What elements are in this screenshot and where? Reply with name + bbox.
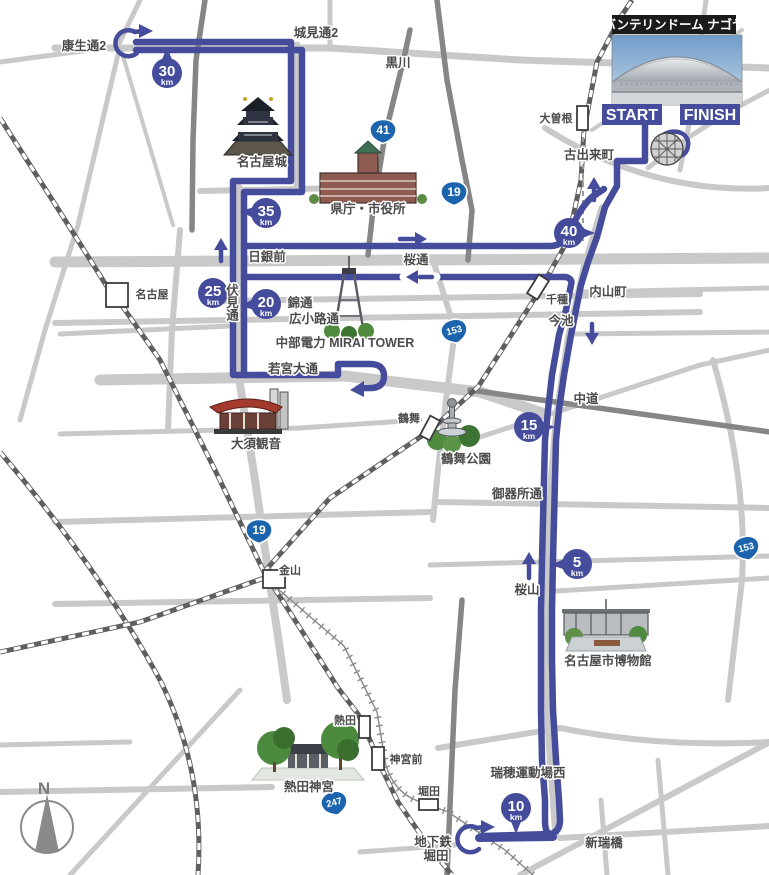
route-shields: 41 19 153 19 247 153 bbox=[246, 120, 762, 819]
station-atsuta bbox=[359, 716, 370, 738]
label-aratamabashi: 新瑞橋 bbox=[585, 835, 623, 850]
svg-text:km: km bbox=[523, 431, 536, 441]
svg-text:km: km bbox=[207, 297, 220, 307]
turnaround-arrow-wakamiya bbox=[350, 381, 364, 397]
svg-text:km: km bbox=[563, 237, 576, 247]
route-41-shield: 41 bbox=[370, 120, 396, 144]
turnaround-arrow-horita bbox=[481, 820, 495, 834]
label-kurokawa: 黒川 bbox=[385, 56, 410, 70]
label-nishikidori: 錦通 bbox=[286, 295, 313, 310]
dome-label: バンテリンドーム ナゴヤ bbox=[603, 15, 744, 34]
start-badge: START bbox=[602, 104, 662, 125]
label-tsurumai: 鶴舞 bbox=[398, 411, 420, 425]
label-ozone: 大曽根 bbox=[540, 111, 574, 125]
station-jingumae bbox=[372, 747, 384, 770]
svg-text:km: km bbox=[571, 568, 584, 578]
svg-text:19: 19 bbox=[252, 523, 266, 537]
label-koseidori2: 康生通2 bbox=[62, 38, 107, 53]
label-uchiyamacho: 内山町 bbox=[589, 284, 627, 299]
label-furudekicho: 古出来町 bbox=[564, 147, 615, 162]
compass-n-text: N bbox=[38, 779, 50, 798]
label-atsuta: 熱田 bbox=[334, 713, 356, 727]
station-nagoya bbox=[106, 283, 128, 307]
city-museum-icon bbox=[562, 599, 650, 651]
svg-text:41: 41 bbox=[376, 123, 390, 137]
finish-badge-text: FINISH bbox=[684, 107, 736, 124]
label-kanayama: 金山 bbox=[278, 563, 301, 577]
label-chikatetsu-horita: 堀田 bbox=[423, 848, 448, 863]
svg-text:19: 19 bbox=[447, 185, 461, 199]
label-nichiginmae: 日銀前 bbox=[248, 249, 286, 264]
label-horita: 堀田 bbox=[418, 784, 440, 798]
nagoya-castle-icon bbox=[224, 97, 292, 155]
course-map: バンテリンドーム ナゴヤ 41 19 153 19 bbox=[0, 0, 769, 875]
atsuta-shrine-icon bbox=[252, 721, 364, 780]
route-153-shield: 153 bbox=[439, 316, 471, 346]
label-atsuta-shrine: 熱田神宮 bbox=[284, 779, 334, 794]
label-osu-kannon: 大須観音 bbox=[231, 436, 282, 451]
osu-kannon-icon bbox=[210, 389, 288, 434]
label-mirai-tower: 中部電力 MIRAI TOWER bbox=[276, 335, 415, 350]
label-gokishodori: 御器所通 bbox=[491, 486, 543, 501]
label-sakurayama: 桜山 bbox=[514, 582, 539, 597]
turnaround-arrow-30km bbox=[139, 24, 153, 38]
course-map-svg: バンテリンドーム ナゴヤ 41 19 153 19 bbox=[0, 0, 769, 875]
prefectural-office-icon bbox=[309, 141, 427, 204]
svg-text:km: km bbox=[161, 77, 174, 87]
label-nakamichi: 中道 bbox=[573, 391, 599, 406]
svg-text:km: km bbox=[510, 812, 523, 822]
dome-photo: バンテリンドーム ナゴヤ bbox=[603, 15, 744, 105]
km-marker-10: 10km bbox=[501, 793, 531, 834]
label-nagoyajo: 名古屋城 bbox=[237, 154, 288, 169]
label-city-museum: 名古屋市博物館 bbox=[564, 653, 652, 668]
label-tsuruma-park: 鶴舞公園 bbox=[441, 451, 491, 466]
sphere-monument-icon bbox=[651, 133, 683, 165]
finish-badge: FINISH bbox=[680, 104, 740, 125]
label-chikusa: 千種 bbox=[546, 292, 568, 306]
label-jingumae: 神宮前 bbox=[390, 752, 423, 766]
route-19-shield: 19 bbox=[441, 182, 467, 206]
station-horita bbox=[419, 799, 438, 810]
label-hirokojidori: 広小路通 bbox=[289, 311, 340, 326]
svg-text:km: km bbox=[260, 308, 273, 318]
label-mizuho: 瑞穂運動場西 bbox=[490, 765, 565, 780]
label-sakuradori: 桜通 bbox=[403, 252, 429, 267]
label-fushimidori: 伏見通 bbox=[224, 282, 239, 321]
label-nagoya-station: 名古屋 bbox=[136, 287, 169, 301]
label-wakamiyaodori: 若宮大通 bbox=[267, 361, 319, 376]
station-ozone bbox=[577, 106, 588, 130]
km-marker-5: 5km bbox=[551, 549, 592, 579]
label-imaike: 今池 bbox=[547, 313, 574, 328]
svg-text:km: km bbox=[260, 217, 273, 227]
label-shiromidori2: 城見通2 bbox=[294, 25, 339, 40]
start-badge-text: START bbox=[606, 107, 658, 124]
label-kencho: 県庁・市役所 bbox=[330, 201, 406, 216]
label-chikatetsu: 地下鉄 bbox=[414, 834, 452, 849]
dome-label-text: バンテリンドーム ナゴヤ bbox=[603, 17, 744, 32]
